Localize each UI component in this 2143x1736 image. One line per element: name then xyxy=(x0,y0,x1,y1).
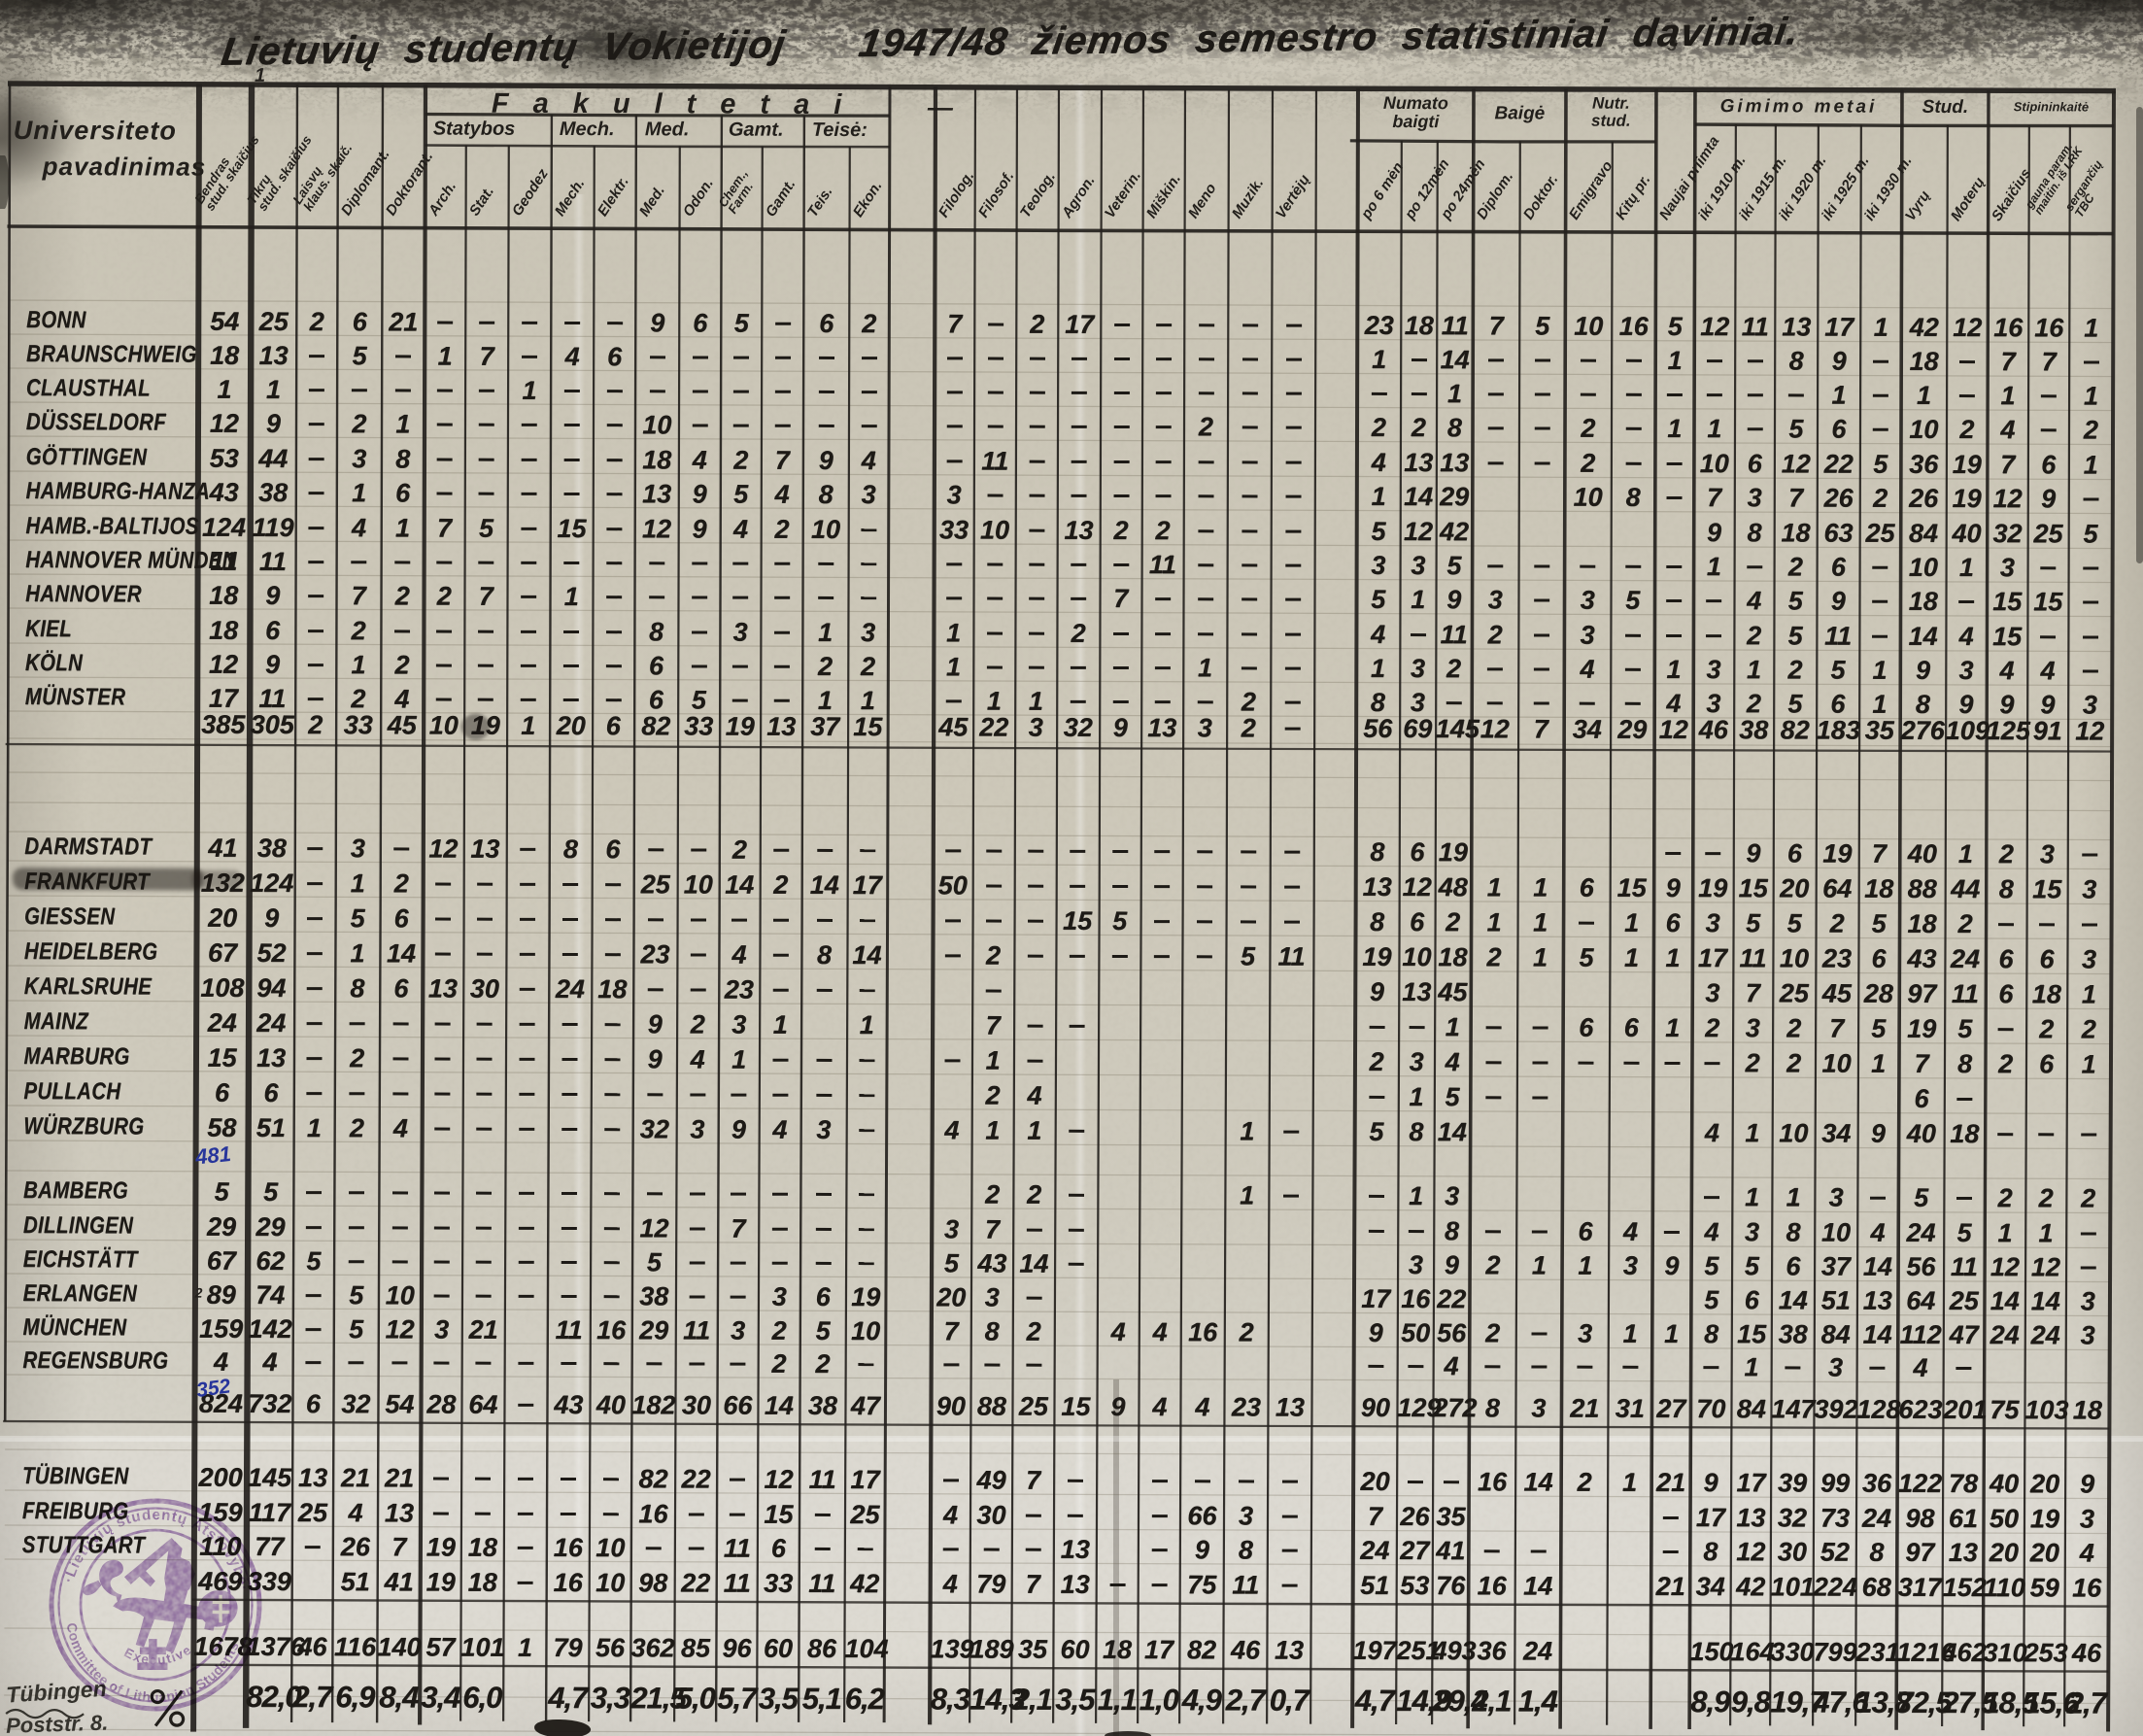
svg-text:·Lietuvių studentų Atstovybė·: ·Lietuvių studentų Atstovybė· xyxy=(60,1507,253,1593)
